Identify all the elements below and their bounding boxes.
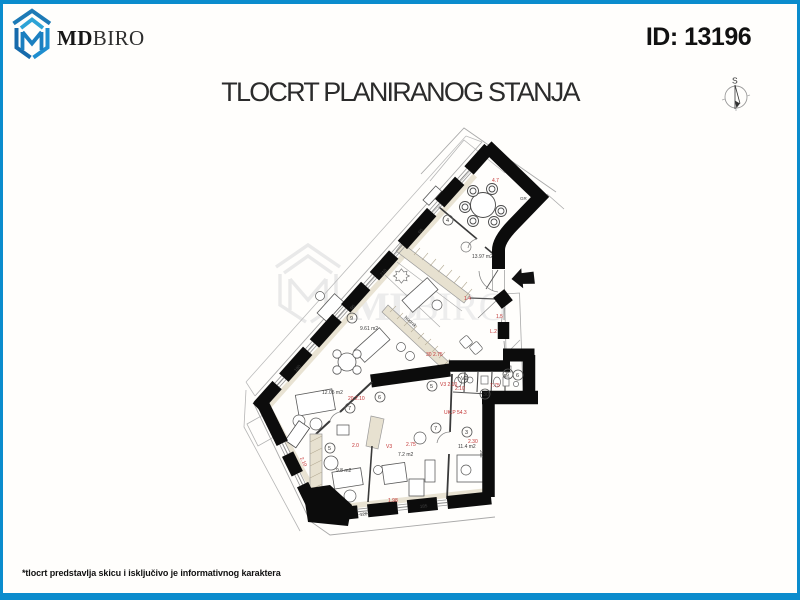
svg-text:185: 185 [420, 503, 428, 509]
svg-text:9.61 m2: 9.61 m2 [360, 326, 378, 332]
svg-text:4.7: 4.7 [492, 178, 499, 184]
svg-text:30 2.75: 30 2.75 [426, 352, 443, 358]
svg-text:S: S [732, 76, 738, 86]
svg-text:9: 9 [350, 316, 353, 322]
svg-text:7: 7 [434, 426, 437, 432]
svg-text:20 2.10: 20 2.10 [348, 396, 365, 402]
svg-text:6: 6 [378, 395, 381, 401]
svg-text:3: 3 [465, 430, 468, 436]
svg-text:13.97 m2: 13.97 m2 [472, 254, 493, 260]
svg-text:265: 265 [479, 450, 484, 458]
svg-text:1.4: 1.4 [464, 296, 471, 302]
svg-text:5: 5 [430, 384, 433, 390]
svg-text:7: 7 [348, 406, 351, 412]
svg-text:1.98: 1.98 [388, 498, 398, 504]
svg-text:2.30: 2.30 [468, 439, 478, 445]
svg-text:1.5: 1.5 [496, 314, 503, 320]
svg-text:120: 120 [360, 511, 368, 517]
svg-text:2.0: 2.0 [352, 443, 359, 449]
svg-text:6: 6 [516, 373, 519, 379]
svg-text:4: 4 [446, 218, 449, 224]
svg-text:6: 6 [506, 372, 509, 378]
svg-text:7.75: 7.75 [490, 383, 500, 389]
svg-text:30: 30 [483, 392, 489, 398]
svg-text:V3: V3 [386, 444, 392, 450]
svg-text:L.2: L.2 [490, 329, 497, 335]
svg-text:12.05 m2: 12.05 m2 [322, 390, 343, 396]
svg-text:2.75: 2.75 [406, 442, 416, 448]
svg-text:UK.P 54.3: UK.P 54.3 [444, 410, 467, 416]
svg-text:GR: GR [520, 196, 528, 201]
svg-text:5: 5 [328, 446, 331, 452]
svg-text:7.2 m2: 7.2 m2 [398, 452, 414, 458]
svg-text:9.8 m2: 9.8 m2 [336, 468, 352, 474]
svg-text:V2: V2 [461, 376, 468, 382]
svg-text:2.10: 2.10 [455, 386, 465, 392]
